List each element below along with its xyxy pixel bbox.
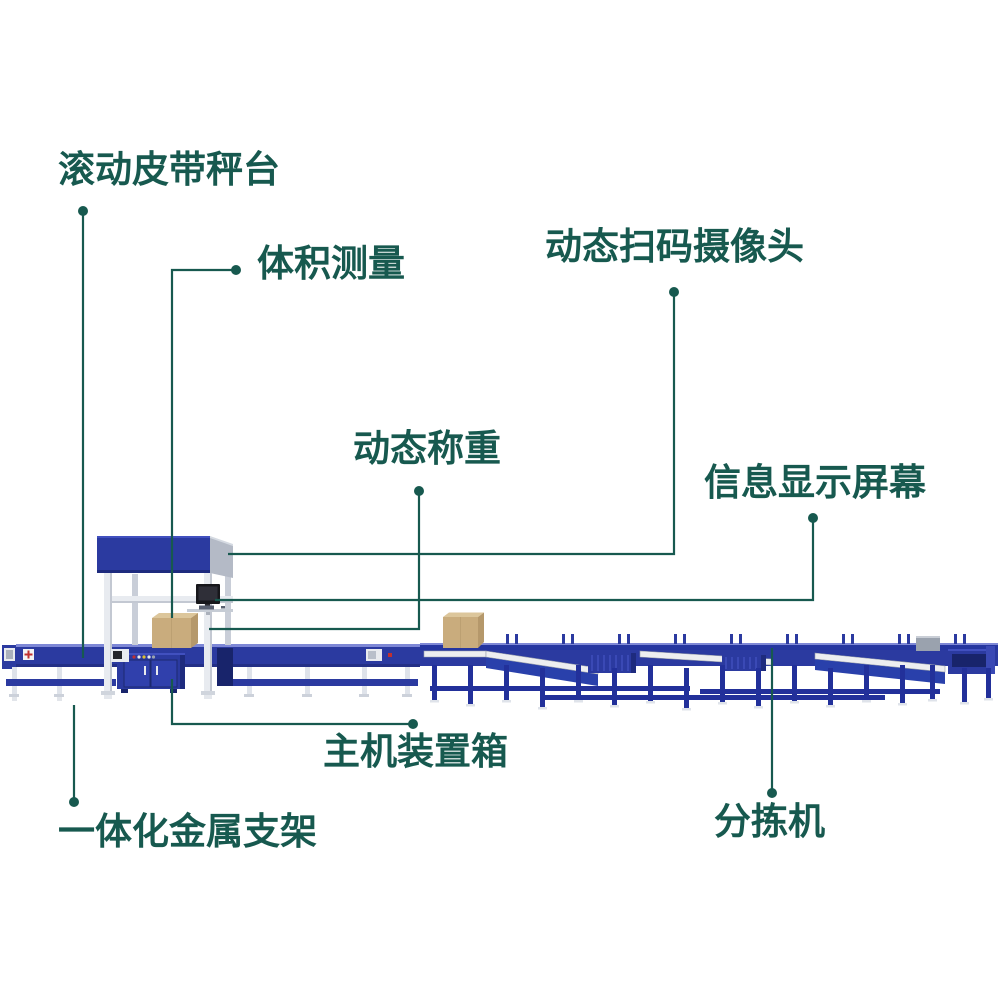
foot-pad xyxy=(104,695,112,699)
door-handle xyxy=(156,666,158,675)
callout-label-info-display-screen: 信息显示屏幕 xyxy=(704,465,926,504)
red-indicator xyxy=(388,653,392,657)
lower-rail xyxy=(545,695,885,700)
lower-rail xyxy=(6,679,116,686)
callout-line-info-display-screen xyxy=(215,518,813,600)
red-cross-icon xyxy=(25,654,33,656)
carton-box-on-scale xyxy=(152,613,198,648)
callout-dot-integrated-metal-frame xyxy=(69,797,79,807)
monitor-screen xyxy=(199,587,218,601)
callout-dot-dynamic-weighing xyxy=(414,486,424,496)
callout-label-sorter: 分拣机 xyxy=(714,804,825,843)
callout-dot-rolling-belt-scale xyxy=(78,206,88,216)
grey-bin xyxy=(916,638,940,651)
leveling-foot xyxy=(359,694,369,697)
callout-dot-main-unit-box xyxy=(408,719,418,729)
carton-box-on-sorter xyxy=(443,613,484,649)
foot-pad xyxy=(204,695,212,699)
callout-lines xyxy=(74,211,813,802)
diagram-stage: 滚动皮带秤台 体积测量 动态扫码摄像头 动态称重 信息显示屏幕 主机装置箱 一体… xyxy=(0,0,1000,1000)
leveling-foot xyxy=(12,697,17,701)
cabinet-foot xyxy=(121,689,128,693)
leveling-foot xyxy=(402,694,412,697)
leveling-foot xyxy=(302,694,312,697)
cabinet-door xyxy=(124,660,150,687)
roller-strip xyxy=(424,651,486,657)
callout-label-dynamic-scan-camera: 动态扫码摄像头 xyxy=(545,229,804,268)
lower-rail xyxy=(700,689,940,694)
belt-gap-opening xyxy=(217,648,233,686)
callout-dot-dynamic-scan-camera xyxy=(669,287,679,297)
foot-plate xyxy=(101,691,115,695)
callout-label-dynamic-weighing: 动态称重 xyxy=(353,431,501,470)
callout-dot-volume-measurement xyxy=(231,265,241,275)
gantry-back-leg xyxy=(132,574,138,645)
callout-dot-info-display-screen xyxy=(808,513,818,523)
callout-dot-sorter xyxy=(767,788,777,798)
sensor-window xyxy=(368,651,376,659)
scanner-housing xyxy=(97,536,233,578)
end-cap-inner xyxy=(6,650,13,659)
callout-line-dynamic-weighing xyxy=(209,491,419,629)
callout-label-volume-measurement: 体积测量 xyxy=(257,246,405,285)
lower-rail xyxy=(232,679,418,686)
keyboard xyxy=(199,606,214,610)
leveling-foot xyxy=(54,694,64,697)
leveling-foot xyxy=(57,697,62,701)
control-panel-screen xyxy=(113,651,122,659)
cabinet-side-shade xyxy=(180,655,185,689)
tray-bracket xyxy=(206,612,210,615)
foot-plate xyxy=(201,691,215,695)
callout-label-main-unit-box: 主机装置箱 xyxy=(323,734,508,773)
callout-dots xyxy=(69,206,818,807)
callout-line-dynamic-scan-camera xyxy=(228,292,674,554)
leveling-foot xyxy=(244,694,254,697)
lower-rail xyxy=(430,686,690,691)
leg-shade xyxy=(110,573,112,693)
callout-label-integrated-metal-frame: 一体化金属支架 xyxy=(58,814,317,853)
belt-top-highlight xyxy=(16,644,420,647)
main-unit-cabinet xyxy=(111,649,185,693)
sorter-machine xyxy=(420,634,998,711)
callout-label-rolling-belt-scale: 滚动皮带秤台 xyxy=(58,152,280,191)
door-handle xyxy=(144,666,146,675)
sorter-top-rail xyxy=(420,645,998,650)
leveling-foot xyxy=(9,694,19,697)
grey-bin-top xyxy=(916,636,940,638)
guide-posts xyxy=(450,634,966,644)
mouse xyxy=(221,606,225,609)
